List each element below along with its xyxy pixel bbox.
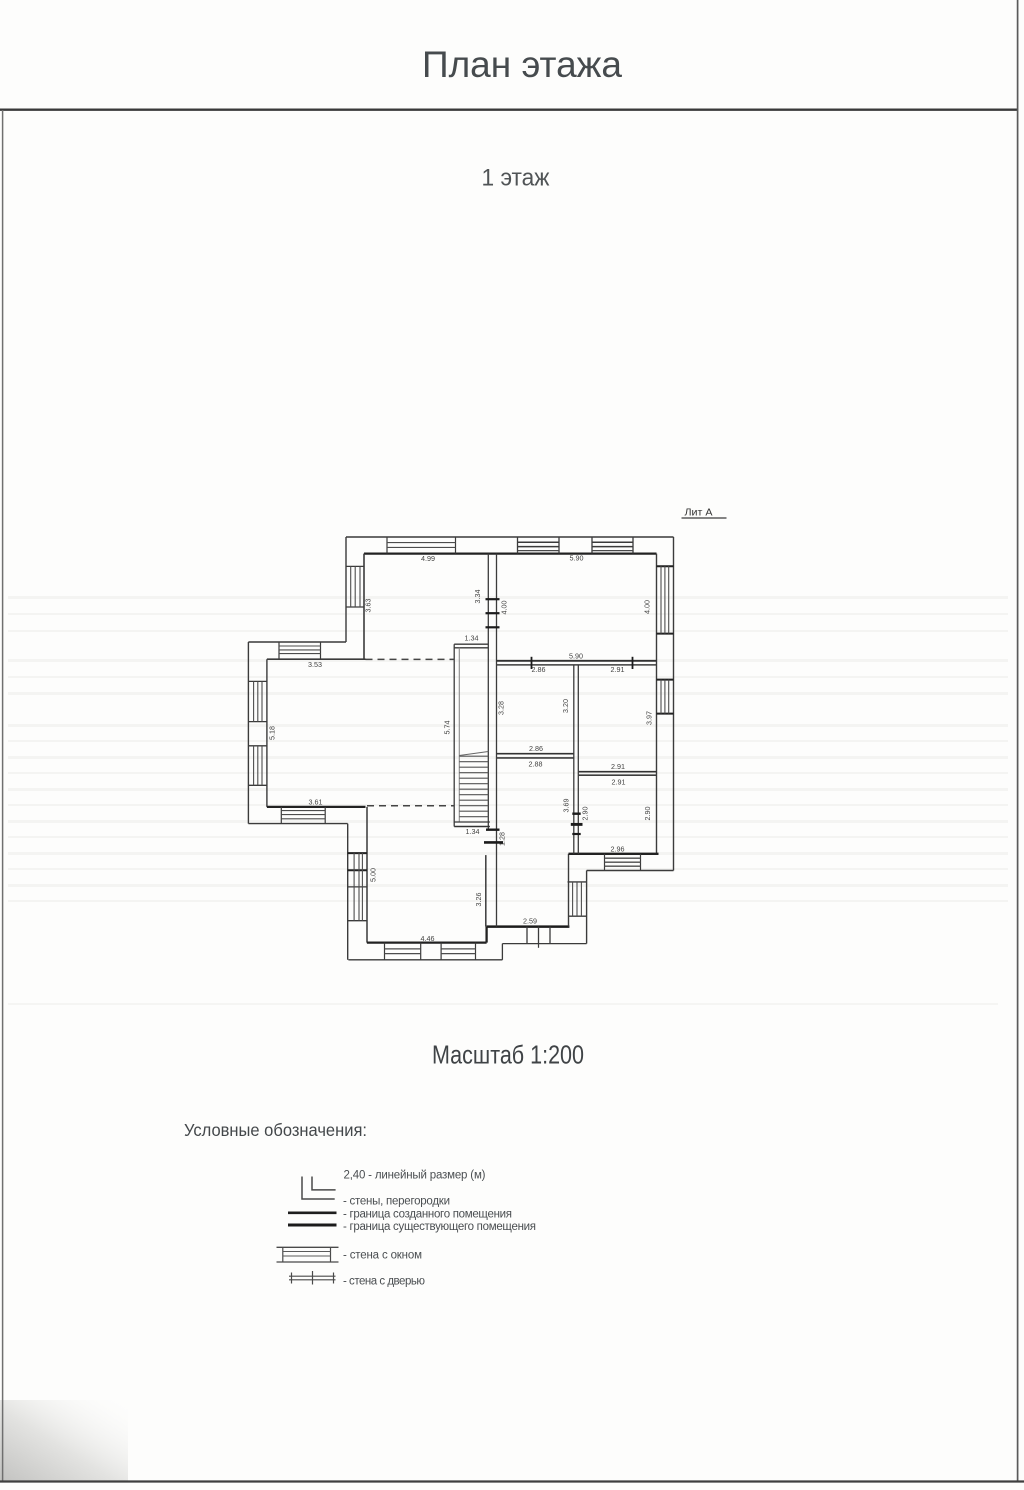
svg-text:4.00: 4.00 (643, 600, 652, 614)
svg-text:Условные обозначения:: Условные обозначения: (184, 1120, 367, 1140)
svg-text:2.91: 2.91 (611, 762, 625, 771)
svg-text:3.34: 3.34 (473, 590, 482, 604)
svg-text:3.28: 3.28 (497, 701, 506, 715)
svg-text:- стена с окном: - стена с окном (343, 1250, 422, 1262)
svg-text:Лит А: Лит А (685, 508, 713, 519)
svg-text:2.90: 2.90 (643, 807, 652, 821)
svg-text:2.59: 2.59 (523, 917, 537, 926)
svg-text:5.74: 5.74 (443, 721, 452, 735)
svg-text:- стены, перегородки: - стены, перегородки (343, 1196, 450, 1208)
svg-text:1 этаж: 1 этаж (482, 165, 551, 192)
svg-text:5.00: 5.00 (369, 868, 378, 882)
svg-text:4.99: 4.99 (421, 554, 435, 563)
svg-text:5.90: 5.90 (569, 652, 583, 661)
svg-text:2.88: 2.88 (529, 760, 543, 769)
svg-text:2.91: 2.91 (612, 778, 626, 787)
svg-text:4.46: 4.46 (421, 934, 435, 943)
svg-text:3.26: 3.26 (474, 893, 483, 907)
svg-text:2.91: 2.91 (611, 665, 625, 674)
svg-text:- граница существующего помеще: - граница существующего помещения (343, 1221, 536, 1233)
svg-text:1.34: 1.34 (465, 634, 479, 643)
svg-text:5.90: 5.90 (570, 554, 584, 563)
svg-text:2.86: 2.86 (529, 744, 543, 753)
svg-text:3.69: 3.69 (562, 799, 571, 813)
svg-text:Масштаб 1:200: Масштаб 1:200 (432, 1040, 584, 1070)
svg-text:1.28: 1.28 (498, 832, 507, 846)
svg-text:2.90: 2.90 (581, 807, 590, 821)
svg-text:3.20: 3.20 (561, 699, 570, 713)
svg-text:2.86: 2.86 (532, 665, 546, 674)
svg-text:- граница созданного помещения: - граница созданного помещения (343, 1209, 512, 1221)
svg-text:3.53: 3.53 (308, 660, 322, 669)
svg-text:4.00: 4.00 (500, 601, 509, 615)
svg-text:2.96: 2.96 (611, 845, 625, 854)
svg-text:3.63: 3.63 (364, 599, 373, 613)
svg-text:5.18: 5.18 (268, 726, 277, 740)
svg-text:2,40 - линейный размер (м): 2,40 - линейный размер (м) (344, 1170, 486, 1182)
svg-text:- стена с дверью: - стена с дверью (343, 1276, 425, 1288)
svg-text:3.97: 3.97 (645, 711, 654, 725)
svg-text:1.34: 1.34 (466, 827, 480, 836)
svg-text:План этажа: План этажа (422, 44, 622, 85)
svg-text:3.61: 3.61 (309, 798, 323, 807)
